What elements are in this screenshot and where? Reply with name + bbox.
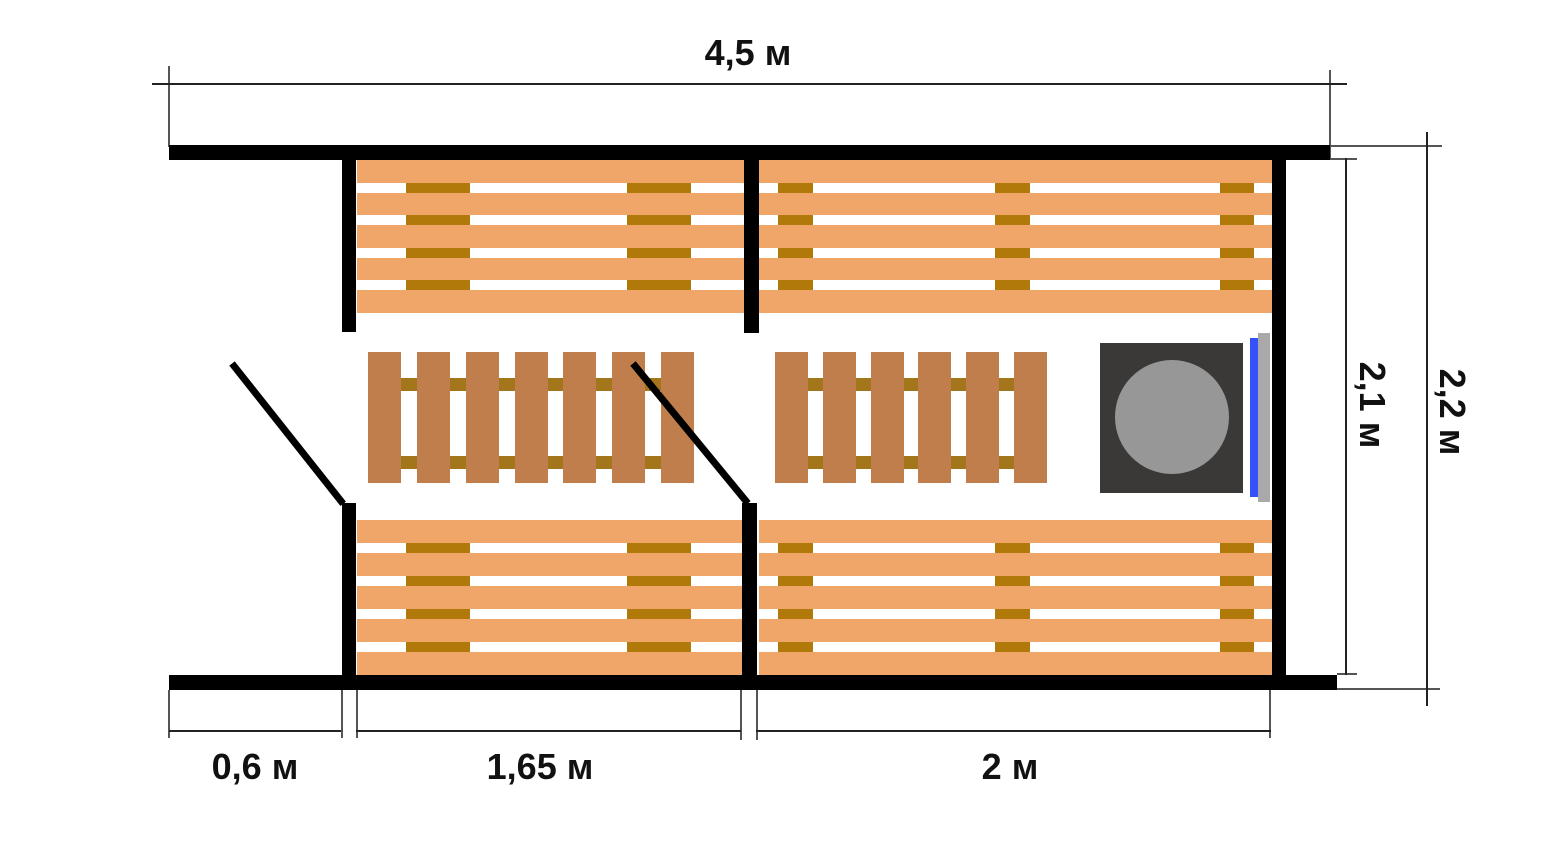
bench-support [1220,183,1254,193]
bench-support [778,576,813,586]
dim-line-bottom-right [756,730,1271,732]
ext-bottom-2 [341,690,343,738]
stove-body [1100,343,1243,493]
ext-bottom-4 [740,690,742,740]
bench-plank-gap [759,576,1272,586]
bench-plank-gap [759,280,1272,290]
dim-label-total-width: 4,5 м [705,32,792,74]
floor-plan: 4,5 м 2,1 м 2,2 м 0,6 м 1,65 м 2 м [0,0,1550,850]
duckboard-plank [1014,352,1047,483]
bench-support [995,280,1030,290]
bench-support [995,576,1030,586]
ext-top-left [168,66,170,147]
bench-plank-gap [759,642,1272,652]
ext-bottom-5 [756,690,758,740]
duckboard-plank [918,352,951,483]
bench-top-right [759,160,1272,313]
bench-support [406,183,470,193]
bench-plank-gap [357,183,744,193]
bench-support [995,215,1030,225]
dim-label-vestibule-width: 0,6 м [212,746,299,788]
dim-line-right-outer [1426,132,1428,706]
bench-bottom-right [759,520,1272,675]
dim-label-inner-depth: 2,1 м [1351,362,1393,449]
ext-right-inner-bottom [1337,673,1357,675]
duckboard-plank [466,352,499,483]
bench-support [778,183,813,193]
bench-support [1220,642,1254,652]
bench-support [406,576,470,586]
bench-support [1220,248,1254,258]
bench-plank-gap [357,576,742,586]
bench-support [1220,609,1254,619]
bench-plank-gap [759,248,1272,258]
bench-bottom-left [357,520,742,675]
bench-support [627,609,691,619]
wall-partition-upper [744,160,759,333]
bench-support [1220,543,1254,553]
stove-lid-circle [1115,360,1229,474]
bench-support [627,280,691,290]
bench-support [406,543,470,553]
duckboard-rail [775,456,1047,469]
ext-right-inner-top [1330,158,1357,160]
duckboard-plank [563,352,596,483]
bench-plank-gap [759,183,1272,193]
dim-label-outer-depth: 2,2 м [1431,369,1473,456]
dim-line-right-inner [1345,158,1347,675]
duckboard-plank [515,352,548,483]
bench-support [995,183,1030,193]
bench-support [627,248,691,258]
bench-support [627,543,691,553]
duckboard-plank [871,352,904,483]
bench-plank-gap [357,280,744,290]
bench-plank-gap [357,215,744,225]
bench-support [1220,576,1254,586]
duckboard-right [775,352,1047,483]
dim-label-washroom-width: 1,65 м [487,746,594,788]
wall-right [1272,160,1286,675]
bench-plank-gap [357,543,742,553]
door-swing-entry [229,361,346,506]
bench-support [627,576,691,586]
duckboard-rail [775,378,1047,391]
bench-plank-gap [357,609,742,619]
bench-support [995,248,1030,258]
duckboard-plank [823,352,856,483]
bench-top-left [357,160,744,313]
bench-support [1220,215,1254,225]
wall-stub-lower-left [342,503,356,675]
dim-line-top [152,83,1347,85]
heater-frame-strip [1258,333,1270,502]
bench-plank-gap [759,543,1272,553]
bench-support [778,248,813,258]
bench-support [627,183,691,193]
bench-support [778,609,813,619]
duckboard-plank [368,352,401,483]
bench-support [1220,280,1254,290]
bench-support [627,215,691,225]
duckboard-plank [775,352,808,483]
bench-plank-gap [357,642,742,652]
wall-top [169,145,1330,160]
wall-bottom [169,675,1337,690]
bench-support [406,280,470,290]
bench-support [778,280,813,290]
wall-stub-upper-left [342,160,356,332]
bench-support [406,215,470,225]
bench-plank-gap [357,248,744,258]
bench-plank-gap [759,215,1272,225]
bench-plank-gap [759,609,1272,619]
dim-label-steamroom-width: 2 м [982,746,1039,788]
bench-support [627,642,691,652]
duckboard-left [368,352,694,483]
duckboard-plank [966,352,999,483]
bench-support [995,543,1030,553]
bench-support [406,642,470,652]
duckboard-plank [417,352,450,483]
dim-line-bottom-left [169,730,341,732]
bench-support [406,609,470,619]
dim-line-bottom-middle [356,730,741,732]
bench-support [778,215,813,225]
bench-support [995,609,1030,619]
bench-support [778,543,813,553]
bench-support [778,642,813,652]
bench-support [406,248,470,258]
wall-stub-lower-middle [742,503,757,675]
ext-right-outer-bottom [1337,688,1440,690]
heater-glass-strip [1250,338,1258,497]
bench-support [995,642,1030,652]
